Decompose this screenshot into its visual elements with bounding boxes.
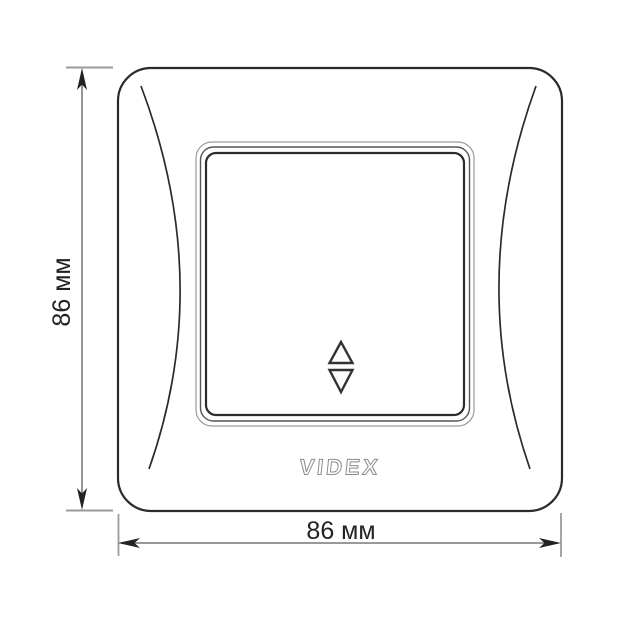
width-dimension: 86 мм <box>118 513 561 557</box>
rocker-button-face <box>206 153 464 415</box>
rocker-button <box>196 142 474 426</box>
technical-drawing: VIDEX 86 мм 86 мм <box>0 0 630 630</box>
videx-logo: VIDEX <box>298 455 382 480</box>
height-dimension-label: 86 мм <box>48 257 76 326</box>
width-dimension-label: 86 мм <box>306 517 375 545</box>
drawing-svg: VIDEX 86 мм 86 мм <box>0 0 630 630</box>
height-dimension: 86 мм <box>48 68 113 511</box>
